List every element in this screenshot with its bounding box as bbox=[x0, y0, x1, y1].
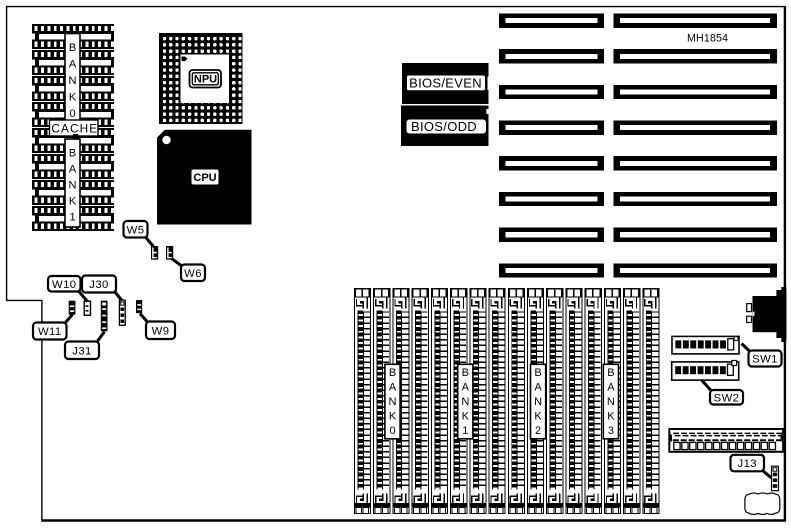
svg-text:MH1854: MH1854 bbox=[687, 33, 728, 45]
svg-text:K: K bbox=[69, 92, 77, 104]
svg-text:K: K bbox=[607, 411, 615, 423]
svg-text:A: A bbox=[69, 163, 77, 175]
svg-text:W11: W11 bbox=[38, 326, 62, 338]
svg-text:CACHE: CACHE bbox=[51, 122, 98, 136]
svg-text:1: 1 bbox=[69, 212, 75, 224]
svg-text:N: N bbox=[69, 75, 77, 87]
svg-text:J30: J30 bbox=[89, 279, 108, 291]
svg-text:N: N bbox=[389, 396, 397, 408]
svg-text:J13: J13 bbox=[738, 458, 757, 470]
svg-text:0: 0 bbox=[389, 425, 395, 437]
svg-text:NPU: NPU bbox=[194, 74, 217, 86]
svg-text:B: B bbox=[389, 367, 396, 379]
svg-text:BIOS/EVEN: BIOS/EVEN bbox=[409, 76, 482, 91]
svg-text:N: N bbox=[69, 180, 77, 192]
svg-text:K: K bbox=[534, 411, 542, 423]
svg-text:0: 0 bbox=[69, 108, 75, 120]
svg-text:W6: W6 bbox=[184, 268, 202, 280]
svg-text:SW2: SW2 bbox=[714, 392, 740, 404]
svg-text:A: A bbox=[607, 381, 615, 393]
svg-text:2: 2 bbox=[535, 425, 541, 437]
svg-text:W9: W9 bbox=[152, 325, 170, 337]
svg-text:A: A bbox=[389, 381, 397, 393]
svg-text:CPU: CPU bbox=[193, 172, 216, 184]
svg-text:K: K bbox=[69, 196, 77, 208]
svg-text:SW1: SW1 bbox=[752, 354, 778, 366]
svg-text:K: K bbox=[462, 411, 470, 423]
svg-text:N: N bbox=[534, 396, 542, 408]
svg-text:1: 1 bbox=[462, 425, 468, 437]
svg-text:B: B bbox=[607, 367, 614, 379]
svg-text:N: N bbox=[607, 396, 615, 408]
svg-text:A: A bbox=[462, 381, 470, 393]
svg-text:W5: W5 bbox=[127, 224, 145, 236]
svg-text:J31: J31 bbox=[72, 345, 91, 357]
svg-text:W10: W10 bbox=[52, 279, 76, 291]
svg-text:K: K bbox=[389, 411, 397, 423]
svg-text:B: B bbox=[69, 42, 76, 54]
svg-text:N: N bbox=[461, 396, 469, 408]
svg-text:3: 3 bbox=[608, 425, 614, 437]
svg-text:B: B bbox=[69, 147, 76, 159]
svg-text:B: B bbox=[462, 367, 469, 379]
svg-text:B: B bbox=[534, 367, 541, 379]
svg-text:A: A bbox=[69, 58, 77, 70]
svg-text:BIOS/ODD: BIOS/ODD bbox=[411, 119, 477, 134]
svg-text:A: A bbox=[534, 381, 542, 393]
